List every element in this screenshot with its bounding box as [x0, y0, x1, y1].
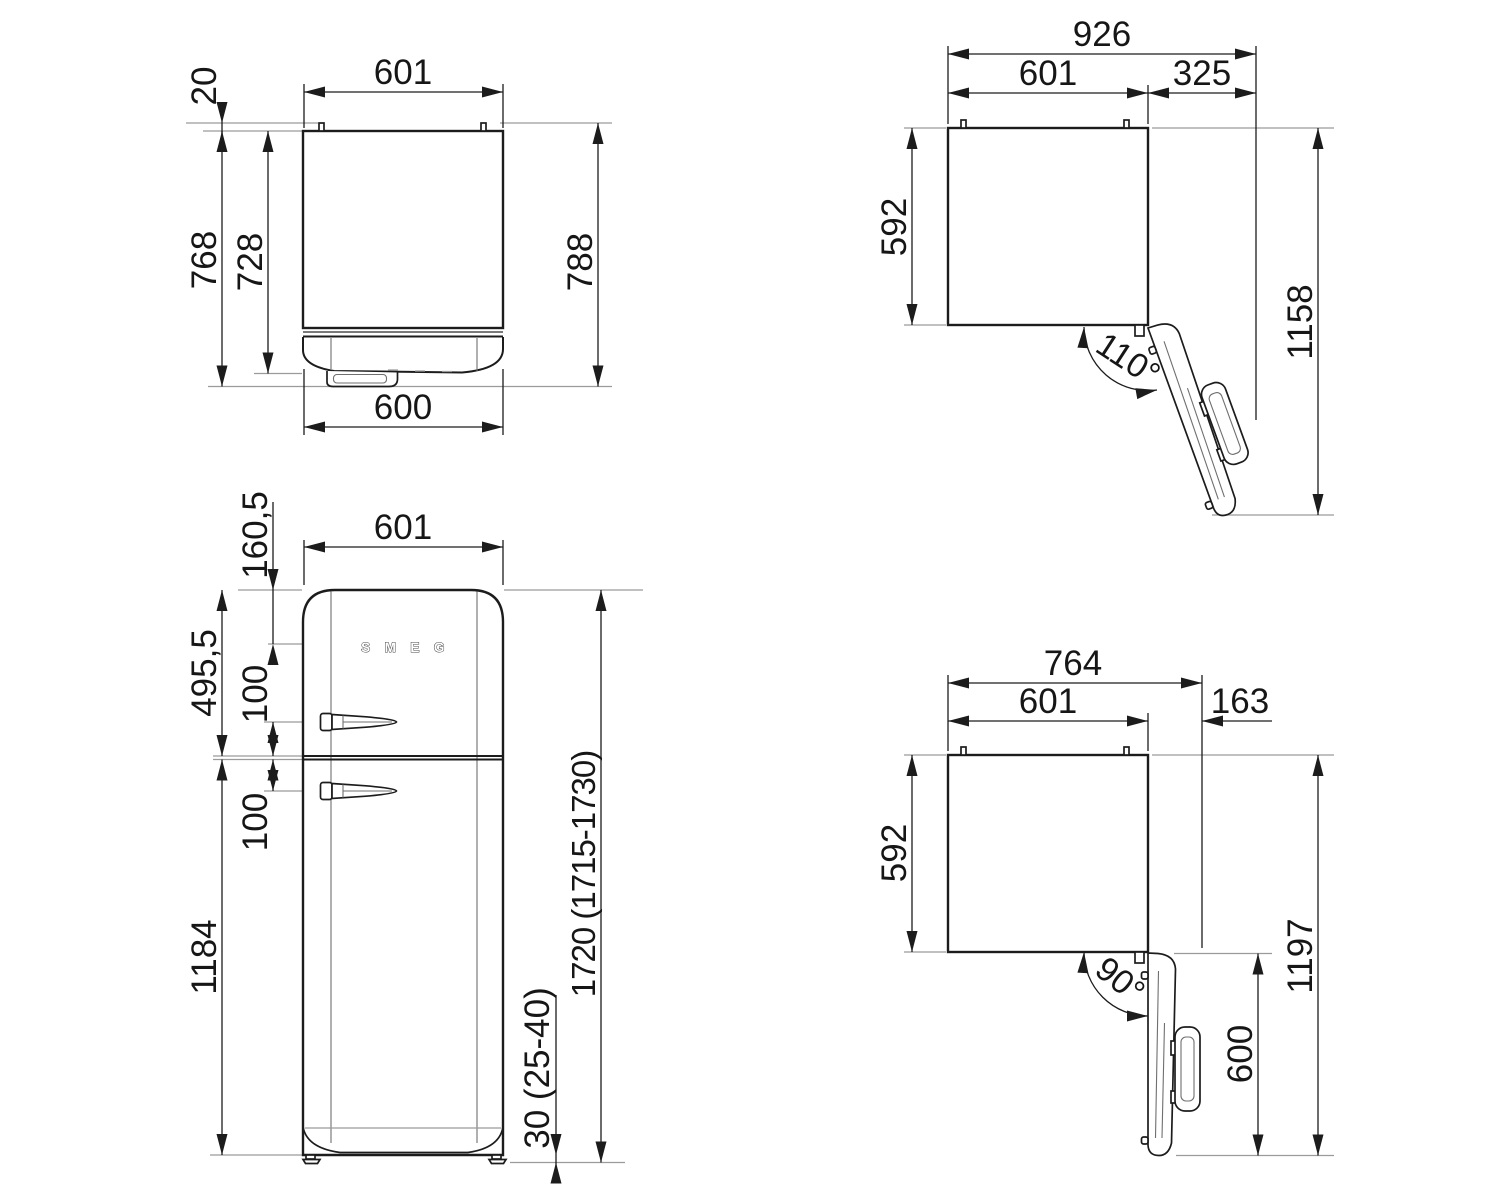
v3-foot-right [489, 1155, 506, 1164]
v4-cabinet-body [948, 755, 1148, 952]
dim-label-v2-overall-depth: 1158 [1281, 284, 1320, 359]
v1-hinge-pin-left [319, 123, 324, 131]
dim-label-v1-depth-handle: 768 [185, 231, 224, 289]
brand-logo: SMEG [361, 640, 459, 655]
v2-hinge-pin-right [1124, 120, 1129, 128]
dim-label-v4-projection: 163 [1211, 682, 1269, 721]
v4-hinge-pin-right [1124, 747, 1129, 755]
v1-door-outline [303, 337, 503, 373]
dim-v3-handle-lower-100 [268, 760, 279, 792]
view-door-open-90: 90° 764 601 163 592 600 [875, 644, 1334, 1156]
dim-v1-pin-20 [217, 102, 228, 135]
dim-label-v4-overall-depth: 1197 [1281, 918, 1320, 993]
v2-hinge-bracket [1135, 325, 1144, 336]
dim-label-v4-depth: 592 [875, 824, 914, 882]
dim-label-v2-body-width: 601 [1019, 54, 1077, 93]
v1-door-edge-lines [331, 338, 477, 371]
dim-label-v4-door-width: 600 [1221, 1025, 1260, 1083]
dim-label-v2-depth: 592 [875, 198, 914, 256]
dim-label-v3-feet: 30 (25-40) [518, 987, 557, 1148]
v1-hinge-pin-right [481, 123, 486, 131]
dim-label-v4-overall-width: 764 [1044, 644, 1102, 683]
dim-label-v3-lower-section: 1184 [185, 919, 224, 994]
dimension-drawing-page: 601 20 768 728 788 600 [0, 0, 1500, 1200]
dim-label-v1-width: 601 [374, 53, 432, 92]
dim-label-v2-overall-width: 926 [1073, 15, 1131, 54]
view-door-open-110: 110° 926 601 325 592 [875, 15, 1334, 521]
dim-label-v3-overall-height: 1720 (1715-1730) [565, 751, 602, 997]
dim-label-v1-depth-door: 728 [231, 233, 270, 291]
v3-fridge-body [303, 590, 503, 1155]
v2-hinge-pin-left [961, 120, 966, 128]
dim-label-v3-logo-offset: 160,5 [236, 491, 275, 579]
v4-hinge-pin-left [961, 747, 966, 755]
view-top-closed: 601 20 768 728 788 600 [185, 53, 612, 435]
dim-label-v1-door-width: 600 [374, 388, 432, 427]
dim-label-v3-width: 601 [374, 508, 432, 547]
dim-label-v4-body-width: 601 [1019, 682, 1077, 721]
dim-label-v2-projection: 325 [1173, 54, 1231, 93]
dim-label-v3-upper-handle: 100 [236, 665, 275, 723]
dim-label-v3-lower-handle: 100 [236, 793, 275, 851]
dim-v3-handle-upper-100 [268, 722, 279, 756]
view-front: SMEG 601 160,5 495, [185, 491, 643, 1183]
dimension-drawing: 601 20 768 728 788 600 [0, 0, 1500, 1200]
v2-open-door [1142, 310, 1266, 520]
dim-label-v1-pin: 20 [185, 67, 224, 106]
v1-cabinet-body [303, 131, 503, 328]
v4-hinge-bracket [1135, 952, 1144, 963]
dim-label-v3-upper-section: 495,5 [185, 629, 224, 717]
v2-cabinet-body [948, 128, 1148, 325]
dim-label-v1-depth-overall: 788 [561, 233, 600, 291]
v3-foot-left [303, 1155, 320, 1164]
